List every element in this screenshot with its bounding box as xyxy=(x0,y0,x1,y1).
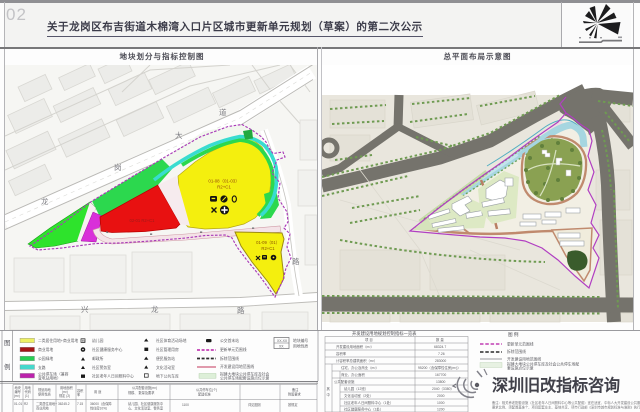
svg-text:2000: 2000 xyxy=(437,394,445,398)
svg-text:便民服务站: 便民服务站 xyxy=(156,356,175,361)
svg-text:R2+C1: R2+C1 xyxy=(261,246,275,251)
svg-text:01-09（01）: 01-09（01） xyxy=(256,240,280,245)
svg-text:项 目: 项 目 xyxy=(365,338,373,342)
svg-text:1100: 1100 xyxy=(182,403,189,407)
svg-text:283000: 283000 xyxy=(435,359,446,363)
svg-text:备注：相关养老配套设施（社区老年人日间照料中心等公共配套）宜: 备注：相关养老配套设施（社区老年人日间照料中心等公共配套）宜在适宜、中标人大开发… xyxy=(492,400,640,405)
svg-text:图 例: 图 例 xyxy=(508,331,519,338)
svg-text:公交首末站: 公交首末站 xyxy=(220,338,239,343)
svg-text:容积率: 容积率 xyxy=(336,351,347,356)
svg-text:备注: 备注 xyxy=(292,387,299,392)
svg-text:其: 其 xyxy=(327,387,331,391)
svg-text:7.26: 7.26 xyxy=(438,352,445,356)
svg-text:地块编号: 地块编号 xyxy=(293,338,308,343)
svg-text:规模、 数量及要求: 规模、 数量及要求 xyxy=(128,390,155,395)
svg-text:公共停车位(个): 公共停车位(个) xyxy=(196,387,217,392)
svg-text:路: 路 xyxy=(292,256,300,266)
svg-text:二类居住用地+商业用地: 二类居住用地+商业用地 xyxy=(38,338,78,343)
svg-text:68324.7: 68324.7 xyxy=(434,345,446,349)
svg-text:公园绿地: 公园绿地 xyxy=(38,356,53,361)
svg-text:开发建设用地规划控制指标一览表: 开发建设用地规划控制指标一览表 xyxy=(352,330,417,337)
svg-text:龙: 龙 xyxy=(151,304,159,314)
svg-text:邮政所: 邮政所 xyxy=(92,356,104,361)
svg-text:公共配套设施(m²): 公共配套设施(m²) xyxy=(132,385,157,390)
svg-text:商业用地: 商业用地 xyxy=(36,406,50,411)
svg-text:规划用地: 规划用地 xyxy=(38,387,52,392)
svg-text:XX: XX xyxy=(279,344,284,348)
svg-text:社区管理用房: 社区管理用房 xyxy=(156,347,179,352)
svg-text:规定 (2): 规定 (2) xyxy=(59,393,70,398)
svg-text:套设施点位示意: 套设施点位示意 xyxy=(507,366,534,371)
svg-text:变电站用地）: 变电站用地） xyxy=(38,376,61,381)
svg-text:社区体育活动场地: 社区体育活动场地 xyxy=(156,338,187,343)
svg-text:更新单元范围线: 更新单元范围线 xyxy=(220,347,247,352)
svg-text:1000: 1000 xyxy=(437,401,445,405)
svg-text:社区老年人日间照料中心: 社区老年人日间照料中心 xyxy=(92,374,134,379)
svg-text:01-08（01-03）: 01-08（01-03） xyxy=(208,179,239,184)
svg-text:路: 路 xyxy=(237,305,245,315)
svg-text:13800: 13800 xyxy=(436,380,446,384)
svg-text:图: 图 xyxy=(4,339,11,347)
svg-text:167700: 167700 xyxy=(435,373,446,377)
svg-text:数 量: 数 量 xyxy=(436,337,444,342)
svg-text:更新单元范围线: 更新单元范围线 xyxy=(507,341,534,346)
svg-text:幼儿园: 幼儿园 xyxy=(92,338,104,343)
svg-text:性住房10%）: 性住房10%） xyxy=(90,406,109,411)
svg-text:心、文化活动室、警务室: 心、文化活动室、警务室 xyxy=(128,406,163,411)
svg-text:用地性质: 用地性质 xyxy=(293,344,308,349)
svg-text:二类居住用地+: 二类居住用地+ xyxy=(36,401,57,406)
svg-text:R2+C1: R2+C1 xyxy=(217,185,231,190)
svg-text:使用性质: 使用性质 xyxy=(38,392,52,397)
svg-text:拆除范围线: 拆除范围线 xyxy=(507,349,526,354)
svg-text:附属要求: 附属要求 xyxy=(288,392,302,397)
svg-text:公共停车场配套设施点位示意: 公共停车场配套设施点位示意 xyxy=(220,376,270,381)
svg-text:36000（含保障: 36000（含保障 xyxy=(90,401,112,406)
svg-text:(1): (1) xyxy=(25,394,29,398)
svg-text:地下公共车库: 地下公共车库 xyxy=(156,374,179,379)
svg-text:7.15: 7.15 xyxy=(77,402,83,406)
svg-text:开发建设用地面积（m²）: 开发建设用地面积（m²） xyxy=(336,344,374,349)
svg-text:详见图则: 详见图则 xyxy=(248,402,261,407)
svg-text:幼: 幼 xyxy=(82,339,85,343)
svg-text:XX-XX: XX-XX xyxy=(277,339,288,343)
svg-text:R2: R2 xyxy=(24,402,28,406)
svg-text:2040（3380）: 2040（3380） xyxy=(432,386,454,391)
svg-text:幼儿园、社区健康服务中: 幼儿园、社区健康服务中 xyxy=(128,401,163,406)
svg-text:要求比例、须配置基准个、项目配套业主、基地共享、项市行政部《: 要求比例、须配置基准个、项目配套业主、基地共享、项市行政部《深圳市城市规划标准与… xyxy=(492,405,640,410)
svg-text:开发建设用地范围线: 开发建设用地范围线 xyxy=(507,356,541,361)
svg-text:计容积率总建筑面积（m²）: 计容积率总建筑面积（m²） xyxy=(336,358,377,363)
svg-text:公共配套设施: 公共配套设施 xyxy=(334,379,355,384)
svg-text:社区老年人日间照料中心（1处）: 社区老年人日间照料中心（1处） xyxy=(344,400,393,405)
svg-text:道: 道 xyxy=(219,107,227,117)
svg-text:36245.2: 36245.2 xyxy=(58,402,70,406)
svg-text:龙: 龙 xyxy=(41,196,49,206)
svg-text:社区健康服务中心: 社区健康服务中心 xyxy=(92,347,123,352)
svg-text:开发建设用地范围线: 开发建设用地范围线 xyxy=(220,364,254,369)
svg-text:商业用地: 商业用地 xyxy=(38,347,53,352)
svg-text:幼儿园（12班）: 幼儿园（12班） xyxy=(344,386,368,391)
svg-text:02-01 R2+C1: 02-01 R2+C1 xyxy=(129,218,155,223)
svg-text:用 途: 用 途 xyxy=(94,389,102,394)
svg-text:1200: 1200 xyxy=(437,407,445,411)
svg-text:01-01: 01-01 xyxy=(14,402,22,406)
svg-text:文化活动室: 文化活动室 xyxy=(156,365,175,370)
svg-text:中: 中 xyxy=(327,392,331,397)
svg-text:岗: 岗 xyxy=(114,163,122,172)
svg-text:住宅、办公及商业（m²）: 住宅、办公及商业（m²） xyxy=(341,365,379,370)
svg-text:例: 例 xyxy=(4,362,11,371)
svg-text:商业、办公面积: 商业、办公面积 xyxy=(341,372,365,377)
svg-text:深圳旧改指标咨询: 深圳旧改指标咨询 xyxy=(492,376,620,395)
svg-text:95200（含保障性住房(m²)）: 95200（含保障性住房(m²)） xyxy=(418,365,461,370)
svg-text:按规定: 按规定 xyxy=(288,402,298,407)
svg-text:大: 大 xyxy=(175,130,183,140)
svg-text:文化活动室（2处）: 文化活动室（2处） xyxy=(344,393,373,398)
svg-text:拆除范围线: 拆除范围线 xyxy=(220,356,239,361)
svg-text:社区警务室: 社区警务室 xyxy=(92,365,111,370)
svg-text:支路: 支路 xyxy=(38,365,46,370)
svg-text:(m²): (m²) xyxy=(14,394,20,398)
svg-text:社区健康服务中心（1处）: 社区健康服务中心（1处） xyxy=(344,406,383,411)
svg-text:兴: 兴 xyxy=(81,305,89,314)
svg-text:配建标准: 配建标准 xyxy=(198,392,212,397)
